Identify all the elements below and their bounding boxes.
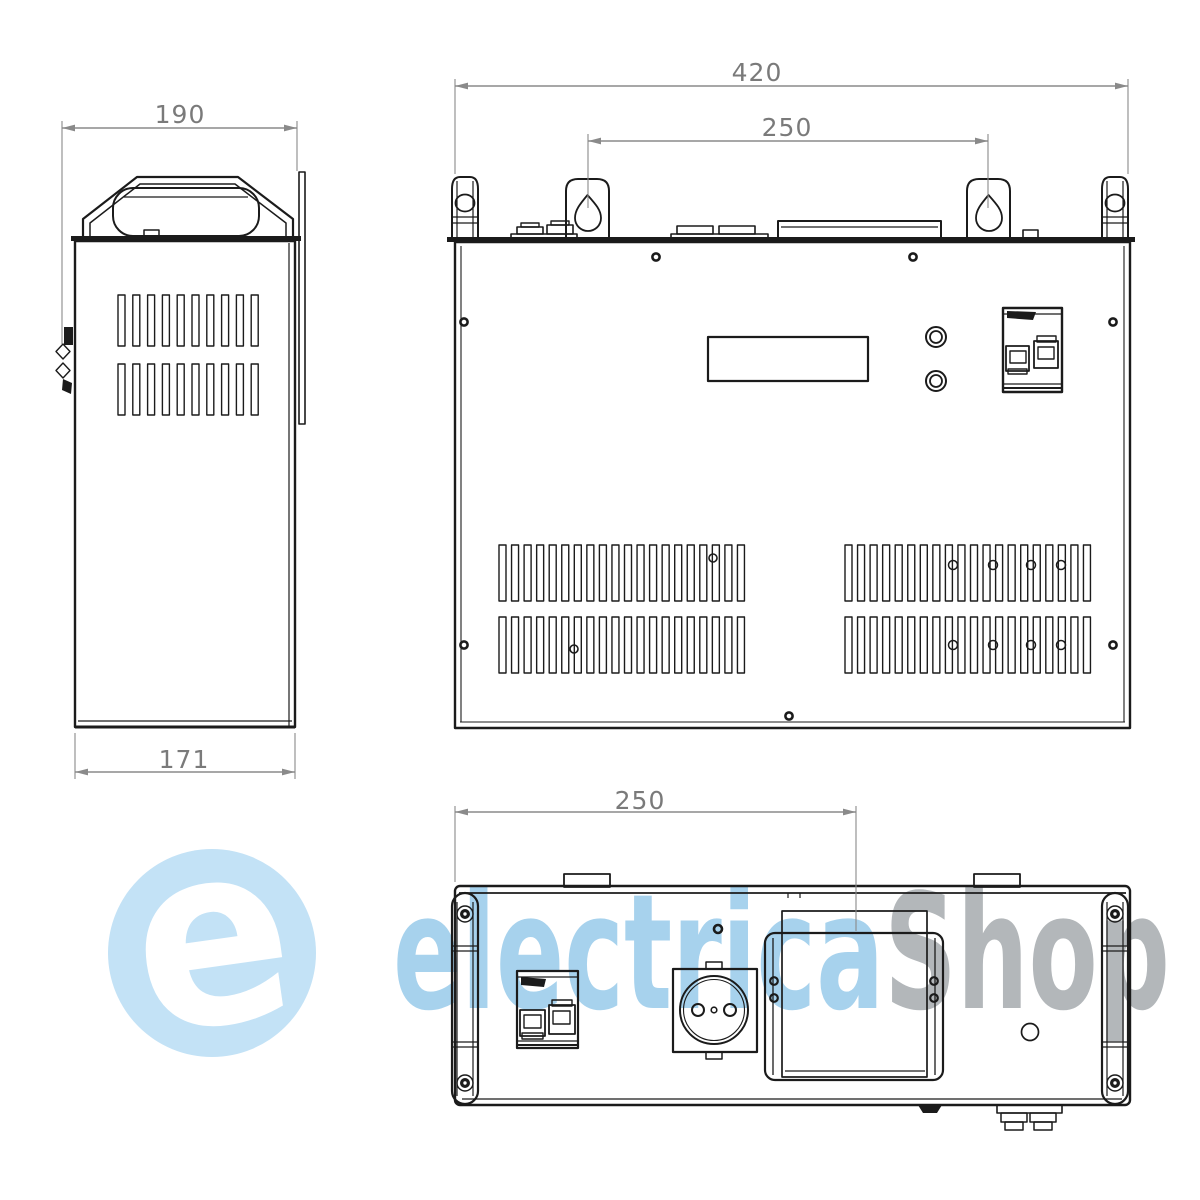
front-view-vents-left bbox=[499, 545, 744, 673]
bottom-view-hole-small bbox=[714, 925, 722, 933]
side-view-handle bbox=[83, 177, 293, 240]
front-view-dimensions bbox=[455, 79, 1128, 208]
front-view-body bbox=[447, 237, 1135, 728]
dim-label-side-width: 190 bbox=[155, 100, 206, 129]
side-view-latch bbox=[56, 327, 73, 394]
side-view-body bbox=[71, 172, 305, 727]
dim-label-front-overall-width: 420 bbox=[732, 58, 783, 87]
technical-drawing-page: e electricaShop bbox=[0, 0, 1200, 1200]
side-view-vents bbox=[118, 295, 258, 415]
bottom-view bbox=[452, 806, 1130, 1130]
bottom-view-breaker bbox=[517, 971, 578, 1048]
drawing-artwork bbox=[0, 0, 1200, 1200]
front-view-top-fittings bbox=[452, 177, 1128, 241]
front-view-buttons bbox=[926, 327, 946, 391]
dim-label-bottom-mount-offset: 250 bbox=[615, 786, 666, 815]
bottom-view-body bbox=[455, 874, 1130, 1105]
bottom-view-right-bracket bbox=[1102, 893, 1128, 1104]
bottom-view-dimensions bbox=[455, 806, 856, 931]
front-view-vents-right bbox=[845, 545, 1090, 673]
bottom-view-connectors bbox=[918, 1105, 1062, 1130]
side-view bbox=[56, 121, 305, 779]
front-view bbox=[447, 79, 1135, 728]
front-view-breaker bbox=[1003, 308, 1062, 392]
front-view-display bbox=[708, 337, 868, 381]
dim-label-front-mount-spacing: 250 bbox=[762, 113, 813, 142]
bottom-view-hole-large bbox=[1022, 1024, 1039, 1041]
bottom-view-socket bbox=[673, 962, 757, 1059]
side-view-dimensions bbox=[62, 121, 297, 779]
dim-label-side-depth: 171 bbox=[159, 745, 210, 774]
front-view-screws bbox=[460, 253, 1116, 719]
bottom-view-terminal-box bbox=[765, 911, 943, 1080]
